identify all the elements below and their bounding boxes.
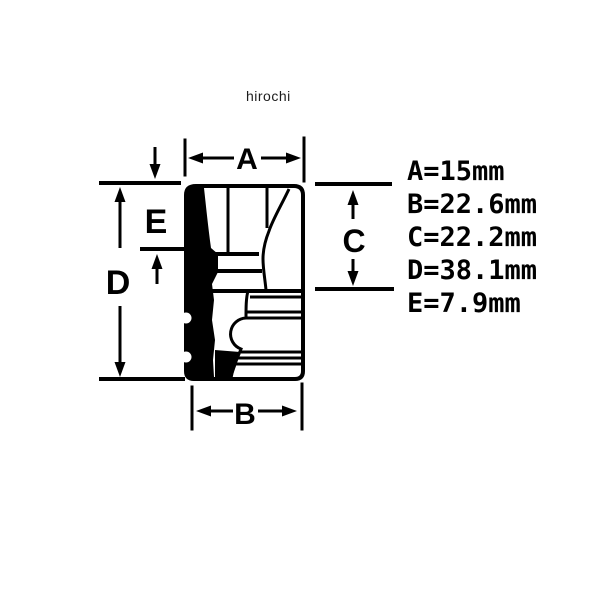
- knurl-notch: [181, 352, 192, 363]
- spec-line-d: D=38.1mm: [407, 254, 537, 287]
- arrowhead-down: [348, 271, 359, 286]
- arrowhead-left: [188, 153, 203, 164]
- spec-list: A=15mm B=22.6mm C=22.2mm D=38.1mm E=7.9m…: [407, 155, 537, 320]
- dim-a-annotation: A: [185, 138, 304, 181]
- dim-label-a: A: [236, 143, 258, 176]
- socket-body: [181, 186, 304, 379]
- dim-b-annotation: B: [192, 384, 302, 431]
- knurl-notch: [181, 313, 192, 324]
- dim-label-e: E: [145, 203, 168, 241]
- socket-dimension-drawing: A E D C B: [85, 125, 415, 445]
- arrowhead-right: [282, 406, 297, 417]
- spec-line-a: A=15mm: [407, 155, 537, 188]
- dim-label-b: B: [234, 398, 256, 431]
- spec-line-b: B=22.6mm: [407, 188, 537, 221]
- arrowhead-down: [150, 164, 161, 179]
- dim-d-annotation: D: [101, 187, 183, 379]
- dim-c-annotation: C: [317, 184, 392, 289]
- watermark-text: hirochi: [246, 88, 291, 104]
- arrowhead-right: [286, 153, 301, 164]
- dim-label-c: C: [342, 223, 365, 259]
- spec-line-c: C=22.2mm: [407, 221, 537, 254]
- arrowhead-down: [115, 362, 126, 377]
- spec-line-e: E=7.9mm: [407, 287, 537, 320]
- dim-label-d: D: [106, 264, 131, 302]
